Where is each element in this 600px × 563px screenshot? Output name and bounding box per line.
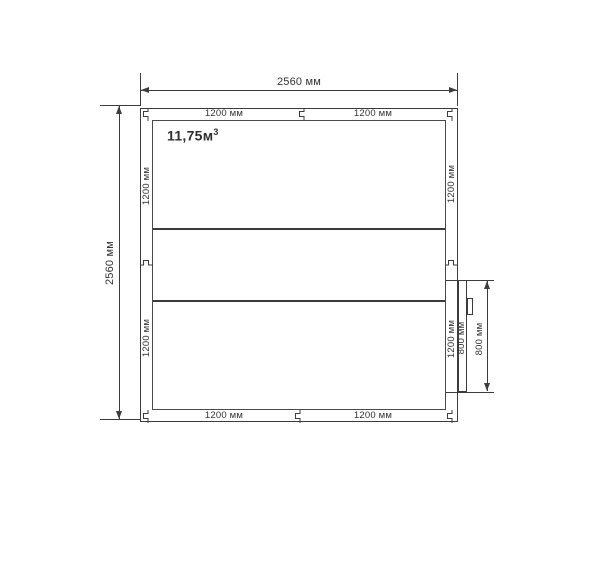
- panel-label-bottom-left: 1200 мм: [184, 410, 264, 422]
- panel-joint-icon: [445, 259, 458, 267]
- panel-joint-icon: [142, 108, 150, 121]
- top-dimension-label: 2560 мм: [254, 75, 344, 89]
- arrowhead-down-icon: [484, 383, 490, 391]
- dimension-line: [141, 90, 457, 91]
- panel-joint-icon: [298, 108, 306, 121]
- extension-line: [446, 392, 494, 393]
- extension-line: [100, 419, 140, 420]
- panel-joint-icon: [142, 410, 150, 423]
- panel-label-bottom-right: 1200 мм: [333, 410, 413, 422]
- extension-line: [457, 73, 458, 106]
- door-panel-label: 800 мм: [456, 313, 468, 363]
- dimension-line: [119, 106, 120, 419]
- panel-joint-icon: [294, 410, 302, 423]
- arrowhead-left-icon: [141, 87, 149, 93]
- dimension-line: [487, 281, 488, 391]
- arrowhead-up-icon: [484, 281, 490, 289]
- panel-joint-icon: [140, 259, 153, 267]
- panel-label-right-top: 1200 мм: [446, 144, 458, 224]
- shelf-line: [153, 228, 445, 230]
- arrowhead-down-icon: [116, 411, 122, 419]
- panel-label-left-bottom: 1200 мм: [141, 298, 153, 378]
- panel-label-top-left: 1200 мм: [184, 108, 264, 120]
- volume-label: 11,75м3: [167, 127, 219, 144]
- panel-label-left-top: 1200 мм: [141, 146, 153, 226]
- panel-label-top-right: 1200 мм: [333, 108, 413, 120]
- panel-joint-icon: [446, 108, 454, 121]
- inner-wall: [152, 120, 446, 410]
- panel-joint-icon: [446, 410, 454, 423]
- container-plan-drawing: 2560 мм 2560 мм 1200 мм 1200 мм 1200 мм …: [0, 0, 600, 563]
- door-dimension-label: 800 мм: [474, 314, 486, 364]
- shelf-line: [153, 300, 445, 302]
- arrowhead-right-icon: [449, 87, 457, 93]
- arrowhead-up-icon: [116, 106, 122, 114]
- left-dimension-label: 2560 мм: [103, 218, 117, 308]
